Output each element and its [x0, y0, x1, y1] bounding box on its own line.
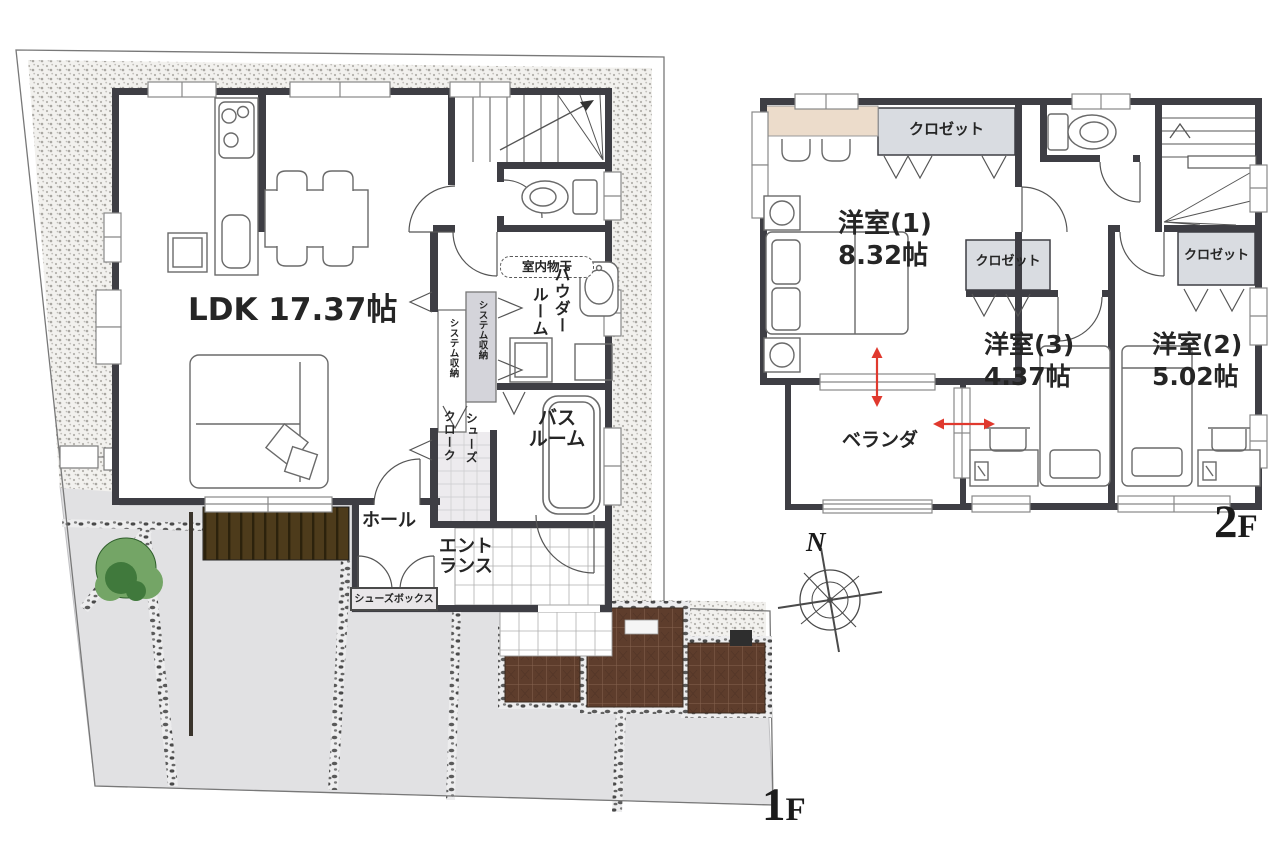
entrance-label: エント ランス — [434, 537, 498, 577]
toilet-1f — [522, 180, 597, 214]
room1-name-label: 洋室(1) — [838, 210, 932, 239]
compass-north-label: N — [806, 528, 826, 558]
veranda-label: ベランダ — [828, 430, 932, 451]
shoes-box-label: シューズボックス — [350, 587, 438, 611]
floor2-label: 2F — [1214, 497, 1258, 549]
closet-room3-label: クロゼット — [966, 255, 1050, 269]
sofa — [190, 355, 328, 488]
porch-tiles — [500, 612, 612, 656]
wood-deck — [203, 507, 349, 560]
floor1-label: 1F — [762, 780, 806, 832]
dining-table — [265, 190, 368, 247]
room3-name-label: 洋室(3) — [984, 331, 1074, 359]
pillow — [1050, 450, 1100, 478]
room1-size-label: 8.32帖 — [838, 242, 928, 271]
closet-room2-label: クロゼット — [1178, 249, 1255, 263]
shoe-closet-label-col2: クローク — [442, 410, 455, 462]
fence-line — [189, 512, 193, 736]
bath-room-label: バス ルーム — [512, 408, 602, 450]
room3-size-label: 4.37帖 — [984, 363, 1071, 391]
counter-desk-room1 — [763, 106, 878, 136]
room2-size-label: 5.02帖 — [1152, 363, 1239, 391]
system-storage-label-right: システム収納 — [476, 300, 486, 360]
shoe-closet-label-col1: シューズ — [464, 412, 477, 464]
ldk-label: LDK 17.37帖 — [188, 293, 392, 327]
indoor-drying-label: 室内物干 — [500, 256, 594, 278]
doormat — [730, 630, 752, 646]
closet-room1-label: クロゼット — [878, 121, 1015, 138]
pillow — [772, 288, 800, 330]
hall-label: ホール — [362, 511, 416, 531]
system-storage-label-left: システム収納 — [447, 318, 457, 378]
toilet-2f — [1048, 114, 1116, 150]
sink-icon — [222, 215, 250, 268]
room2-name-label: 洋室(2) — [1152, 331, 1242, 359]
powder-room-label-col1: パウダー — [552, 266, 570, 334]
floorplan-canvas — [0, 0, 1280, 850]
pillow — [1132, 448, 1182, 476]
pillow — [772, 240, 800, 284]
powder-room-label-col2: ルーム — [530, 286, 548, 337]
floorplan-page: LDK 17.37帖 ホール エント ランス シューズボックス 室内物干 パウダ… — [0, 0, 1280, 850]
compass-rose — [778, 548, 882, 652]
